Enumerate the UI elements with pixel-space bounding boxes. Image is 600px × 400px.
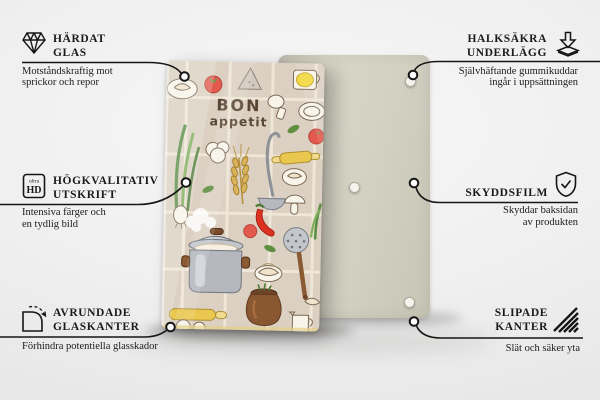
callout-title-line: GLASKANTER bbox=[53, 321, 140, 335]
callout-subtitle-line: Självhäftande gummikuddar bbox=[459, 66, 578, 78]
product-infographic: { "product": { "art_line1": "BON", "art_… bbox=[0, 0, 600, 400]
callout-subtitle-line: Förhindra potentiella glasskador bbox=[22, 341, 158, 353]
callout-title-line: HÖGKVALITATIV bbox=[53, 175, 159, 189]
callout-subtitle-line: en tydlig bild bbox=[22, 219, 106, 231]
bevel-edge-icon bbox=[551, 304, 579, 334]
callout-subtitle-line: Slät och säker yta bbox=[506, 343, 580, 355]
svg-text:HD: HD bbox=[27, 185, 42, 196]
callout-title-line: UNDERLÄGG bbox=[467, 47, 547, 61]
rubber-pad bbox=[349, 182, 360, 193]
rubber-pad bbox=[405, 76, 416, 87]
callout-title-line: HÄRDAT bbox=[53, 33, 106, 47]
front-panel-artwork: BON appetit bbox=[161, 60, 325, 331]
front-panel: BON appetit bbox=[161, 60, 325, 331]
pads-icon bbox=[556, 31, 580, 58]
callout-title-line: KANTER bbox=[495, 321, 548, 335]
rubber-pad bbox=[404, 297, 415, 308]
ultra-hd-icon: ultra HD bbox=[22, 173, 46, 199]
callout-subtitle-line: Intensiva färger och bbox=[22, 207, 106, 219]
callout-subtitle-line: av produkten bbox=[503, 217, 578, 229]
callout-subtitle-line: sprickor och repor bbox=[22, 77, 113, 89]
callout-subtitle-line: Motståndskraftig mot bbox=[22, 66, 113, 78]
callout-title-line: SKYDDSFILM bbox=[465, 187, 548, 201]
callout-title-line: HALKSÄKRA bbox=[467, 33, 547, 47]
shield-check-icon bbox=[554, 171, 578, 198]
callout-subtitle-line: Skyddar baksidan bbox=[503, 205, 578, 217]
rounded-corner-icon bbox=[19, 303, 47, 333]
svg-text:ultra: ultra bbox=[29, 179, 40, 185]
callout-title-line: AVRUNDADE bbox=[53, 307, 140, 321]
callout-title-line: UTSKRIFT bbox=[53, 189, 159, 203]
diamond-icon bbox=[21, 31, 47, 55]
callout-title-line: GLAS bbox=[53, 47, 106, 61]
callout-subtitle-line: ingår i uppsättningen bbox=[459, 77, 578, 89]
callout-title-line: SLIPADE bbox=[495, 307, 548, 321]
